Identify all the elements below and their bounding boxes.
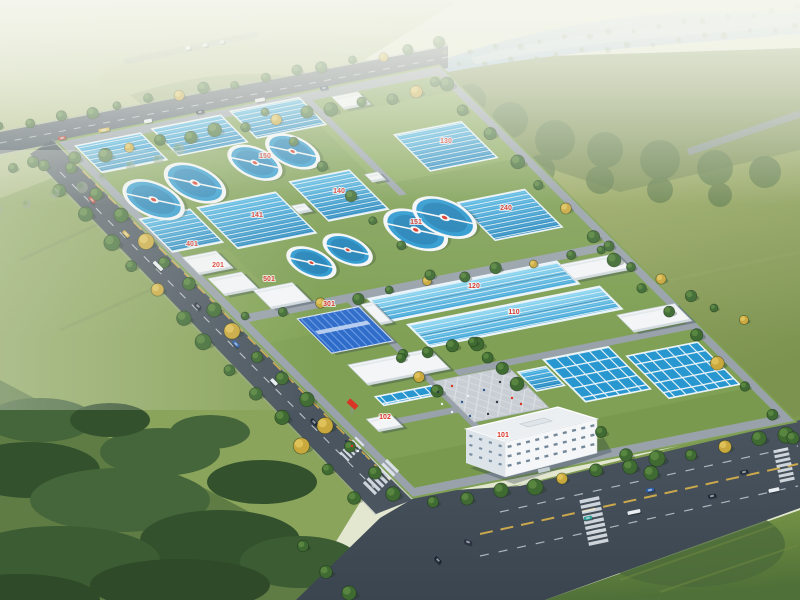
person	[461, 401, 463, 403]
person	[363, 455, 365, 457]
facility-label: 102	[379, 414, 391, 421]
person	[511, 397, 513, 399]
person	[487, 413, 489, 415]
person	[499, 381, 501, 383]
haze-left	[0, 150, 320, 410]
person	[437, 391, 439, 393]
person	[351, 445, 353, 447]
person	[469, 415, 471, 417]
aerial-rendering: Aerial architectural rendering of a larg…	[0, 0, 800, 600]
person	[467, 395, 469, 397]
screenshot-frame: Aerial architectural rendering of a larg…	[0, 0, 800, 600]
person	[441, 403, 443, 405]
person	[345, 440, 347, 442]
person	[496, 401, 498, 403]
person	[357, 450, 359, 452]
person	[451, 385, 453, 387]
person	[483, 389, 485, 391]
facility-label: 101	[497, 432, 509, 439]
person	[451, 411, 453, 413]
person	[520, 403, 522, 405]
